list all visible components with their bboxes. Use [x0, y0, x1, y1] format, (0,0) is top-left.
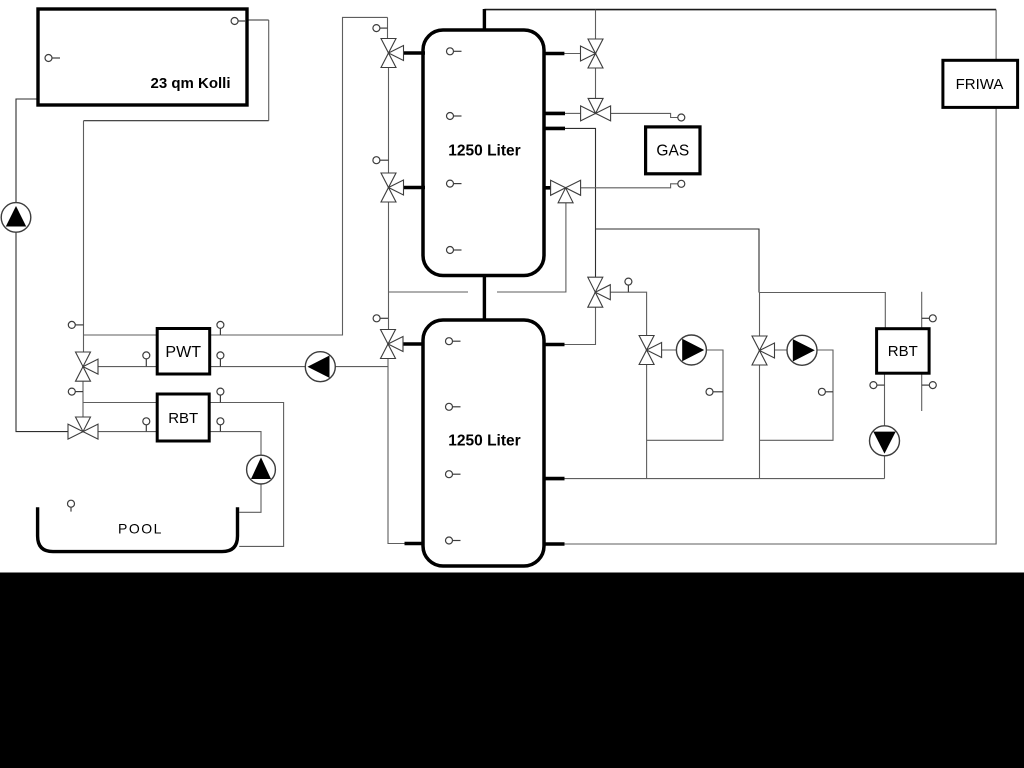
- svg-text:POOL: POOL: [118, 521, 163, 537]
- svg-text:23 qm Kolli: 23 qm Kolli: [150, 75, 230, 92]
- svg-text:1250 Liter: 1250 Liter: [448, 143, 520, 160]
- svg-text:1250 Liter: 1250 Liter: [448, 433, 520, 450]
- svg-text:RBT: RBT: [888, 343, 918, 360]
- svg-text:RBT: RBT: [168, 410, 198, 427]
- svg-text:FRIWA: FRIWA: [956, 76, 1004, 93]
- svg-text:GAS: GAS: [656, 143, 689, 160]
- svg-text:PWT: PWT: [165, 344, 201, 361]
